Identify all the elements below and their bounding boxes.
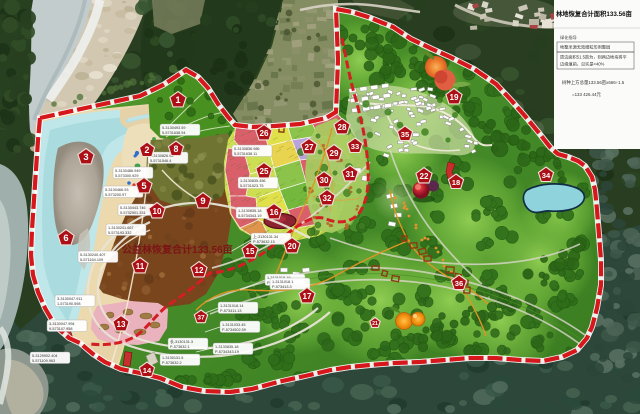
svg-text:13: 13: [116, 320, 126, 329]
svg-text:3: 3: [83, 151, 88, 162]
svg-text:3-3130047.994: 3-3130047.994: [49, 322, 75, 326]
svg-text:34: 34: [542, 171, 551, 180]
svg-text:35: 35: [401, 130, 410, 139]
svg-text:5: 5: [141, 180, 146, 191]
svg-text:12: 12: [194, 266, 204, 275]
svg-text:30: 30: [319, 176, 329, 185]
svg-text:1-3131018.14: 1-3131018.14: [220, 304, 243, 308]
svg-text:5-573300.929: 5-573300.929: [115, 174, 138, 178]
svg-text:5-3130493.59: 5-3130493.59: [162, 126, 185, 130]
svg-text:26: 26: [259, 129, 269, 138]
svg-text:5-5731638.94: 5-5731638.94: [162, 131, 185, 135]
svg-text:P-573632.2: P-573632.2: [162, 361, 182, 365]
svg-text:5-571109.963: 5-571109.963: [32, 359, 55, 363]
svg-text:P-5734502.59: P-5734502.59: [222, 328, 246, 332]
svg-text:5-5732901.331: 5-5732901.331: [120, 211, 146, 215]
svg-text:P-5734343.19: P-5734343.19: [215, 350, 239, 354]
svg-text:2: 2: [145, 145, 150, 155]
svg-text:29: 29: [329, 149, 339, 158]
svg-text:5-3130466.93: 5-3130466.93: [105, 188, 128, 192]
svg-text:1-3130835.18: 1-3130835.18: [215, 345, 238, 349]
svg-text:1-3130835.18: 1-3130835.18: [238, 209, 261, 213]
svg-text:9-573107.958: 9-573107.958: [49, 327, 72, 331]
svg-text:15: 15: [245, 247, 255, 256]
svg-text:19: 19: [449, 93, 459, 102]
svg-text:P-573632.15: P-573632.15: [253, 240, 275, 244]
svg-text:5-3130826.98: 5-3130826.98: [150, 154, 173, 158]
svg-text:37: 37: [197, 315, 205, 322]
svg-text:33: 33: [351, 142, 359, 151]
svg-text:27: 27: [304, 143, 314, 152]
svg-text:5-5734343.19: 5-5734343.19: [238, 214, 261, 218]
svg-text:21: 21: [372, 321, 378, 327]
svg-text:8: 8: [174, 144, 179, 154]
svg-text:绿化指导: 绿化指导: [560, 34, 577, 41]
svg-text:P-573411.13: P-573411.13: [220, 309, 241, 313]
svg-text:17: 17: [302, 292, 312, 301]
svg-text:边缘填前，见实是>40%: 边缘填前，见实是>40%: [560, 61, 605, 68]
svg-text:5-5731523.75: 5-5731523.75: [240, 184, 263, 188]
svg-text:P-573632.1: P-573632.1: [170, 345, 190, 349]
svg-text:1-3130241.667: 1-3130241.667: [108, 226, 134, 230]
svg-text:28: 28: [337, 123, 347, 132]
svg-text:5-3130486.949: 5-3130486.949: [115, 169, 141, 173]
svg-text:1-3130835.456: 1-3130835.456: [240, 179, 266, 183]
svg-text:22: 22: [419, 172, 429, 181]
svg-text:18: 18: [452, 178, 460, 187]
svg-text:5-5731638.11: 5-5731638.11: [234, 152, 257, 156]
svg-text:1-3130131.5: 1-3130131.5: [162, 356, 183, 360]
svg-text:11: 11: [136, 262, 145, 271]
svg-text:5-3129902.404: 5-3129902.404: [32, 354, 58, 358]
svg-text:树种上方总量133.56亩x666÷1.5: 树种上方总量133.56亩x666÷1.5: [562, 79, 625, 86]
svg-text:5-3130240.407: 5-3130240.407: [80, 253, 106, 257]
svg-text:周边面积51.5亩为，则两边地块将平: 周边面积51.5亩为，则两边地块将平: [560, 54, 627, 61]
svg-text:P-573413.3: P-573413.3: [272, 285, 292, 289]
svg-text:上-3130131.34: 上-3130131.34: [253, 234, 278, 239]
svg-text:公益林恢复合计133.56亩: 公益林恢复合计133.56亩: [122, 243, 233, 256]
svg-text:25: 25: [259, 167, 269, 176]
svg-text:36: 36: [455, 279, 463, 288]
svg-text:地整米源无效细粒形则整园: 地整米源无效细粒形则整园: [560, 44, 610, 51]
svg-text:10: 10: [152, 207, 162, 216]
svg-text:1-3131033.45: 1-3131033.45: [222, 323, 245, 327]
svg-text:31: 31: [345, 170, 355, 179]
svg-text:5-573193.332: 5-573193.332: [108, 231, 131, 235]
svg-text:16: 16: [269, 208, 279, 217]
svg-text:5-573200.97: 5-573200.97: [105, 193, 126, 197]
svg-text:6: 6: [63, 232, 68, 243]
svg-text:5-5731546.4: 5-5731546.4: [150, 159, 171, 163]
svg-text:3-3130047.911: 3-3130047.911: [57, 297, 82, 301]
svg-text:林地恢复合计面积133.56亩: 林地恢复合计面积133.56亩: [556, 9, 633, 18]
svg-text:9: 9: [200, 195, 205, 206]
svg-text:32: 32: [322, 194, 332, 203]
svg-text:1-3131018.1: 1-3131018.1: [272, 280, 293, 284]
svg-text:1-573190.598: 1-573190.598: [57, 302, 80, 306]
svg-text:5-571164.109: 5-571164.109: [80, 258, 103, 262]
svg-text:20: 20: [287, 242, 297, 251]
svg-text:1: 1: [175, 94, 180, 105]
svg-text:长-3130131.3: 长-3130131.3: [170, 339, 193, 344]
svg-text:5-3130836.986: 5-3130836.986: [234, 147, 260, 151]
svg-text:5-3130443.746: 5-3130443.746: [120, 206, 146, 210]
svg-text:14: 14: [143, 366, 152, 375]
